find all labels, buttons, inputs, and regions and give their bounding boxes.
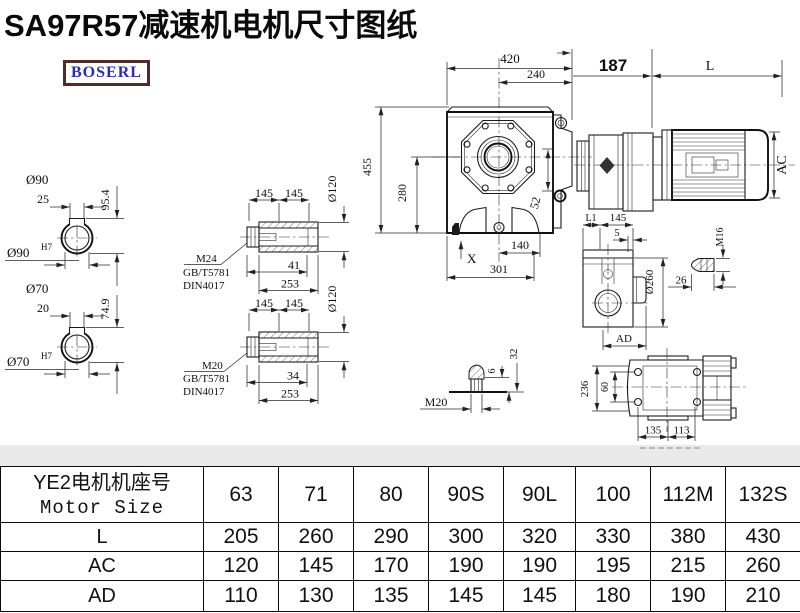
dim-253b-label: 253 [281,387,299,401]
drawing-sheet: Ø90 25 95.4 Ø90 H7 Ø70 20 74.9 Ø70 [0,0,800,613]
value-cell: 110 [204,581,279,612]
size-cell: 80 [354,467,429,523]
bolt-m20-label: M20 [202,360,223,372]
gearbox-bottom-view: 236 60 135 113 [579,348,748,448]
value-cell: 260 [279,523,354,552]
dim-301-label: 301 [490,262,508,276]
motor-side-view: 187 L AC [557,49,795,211]
plug-m16-detail: M16 26 [668,228,736,291]
dim-455-label: 455 [360,158,374,176]
header-cn: YE2电机机座号 [1,470,203,496]
dim-145a-label: 145 [255,186,273,200]
marker-x-label: X [467,251,477,266]
value-cell: 170 [354,552,429,581]
value-cell: 380 [651,523,726,552]
dim-keyway20-label: 20 [37,301,49,315]
table-row-AC: AC 120 145 170 190 190 195 215 260 [1,552,800,581]
value-cell: 215 [651,552,726,581]
dim-l-label: L [706,59,715,74]
header-motor-size: YE2电机机座号 Motor Size [1,467,204,523]
gearbox-front-view: 420 240 455 280 52 140 [360,49,592,281]
dim-52-label: 52 [527,195,544,210]
dim-145d-label: 145 [285,296,303,310]
brand-badge: BOSERL [63,60,150,86]
brand-badge-text: BOSERL [71,64,142,81]
dim-34-label: 34 [287,369,299,383]
shaft-section-70: Ø70 20 74.9 Ø70 H7 [5,281,124,394]
bore70-label: Ø70 [7,354,29,369]
value-cell: 145 [429,581,504,612]
value-cell: 190 [429,552,504,581]
dim-keyway25-label: 25 [37,192,49,206]
std-din4017-b-label: DIN4017 [183,386,225,398]
dim-32-label: 32 [508,349,520,360]
bushing-m24: 145 145 Ø120 M24 GB/T5781 DIN4017 41 253 [183,176,349,294]
dim-140-label: 140 [511,238,529,252]
dim-dia260-label: Ø260 [644,269,656,294]
value-cell: 430 [726,523,800,552]
value-cell: 300 [429,523,504,552]
dim-145e-label: 145 [610,212,627,224]
header-en: Motor Size [1,496,203,520]
table-row-L: L 205 260 290 300 320 330 380 430 [1,523,800,552]
size-cell: 63 [204,467,279,523]
dim-5-label: 5 [615,228,620,239]
plug-m16-label: M16 [715,228,726,247]
row-label: L [1,523,204,552]
std-gbt5781-a-label: GB/T5781 [183,267,230,279]
size-cell: 100 [576,467,651,523]
dim-26-label: 26 [676,275,688,287]
value-cell: 145 [504,581,576,612]
value-cell: 190 [504,552,576,581]
value-cell: 260 [726,552,800,581]
dim-dia70-label: Ø70 [26,281,48,296]
size-cell: 90S [429,467,504,523]
dim-145b-label: 145 [285,186,303,200]
dim-ad-label: AD [616,333,632,345]
dim-dia120b-label: Ø120 [325,286,339,313]
bushing-m20: 145 145 Ø120 M20 GB/T5781 DIN4017 34 253 [183,286,349,404]
dim-dia90-label: Ø90 [26,172,48,187]
row-label: AC [1,552,204,581]
dim-145c-label: 145 [255,296,273,310]
value-cell: 330 [576,523,651,552]
std-gbt5781-b-label: GB/T5781 [183,373,230,385]
table-header-row: YE2电机机座号 Motor Size 63 71 80 90S 90L 100… [1,467,800,523]
dim-420-label: 420 [500,51,520,66]
value-cell: 145 [279,552,354,581]
size-cell: 112M [651,467,726,523]
value-cell: 190 [651,581,726,612]
plug-m20-detail: M20 6 32 [420,349,524,414]
row-label: AD [1,581,204,612]
dim-60-label: 60 [600,382,611,392]
size-cell: 132S [726,467,800,523]
dim-253a-label: 253 [281,277,299,291]
vent-diamond-mark [600,157,615,174]
plug-m20-label: M20 [425,395,448,409]
dim-240-label: 240 [527,67,545,81]
bore70-fit-label: H7 [41,351,52,361]
value-cell: 135 [354,581,429,612]
value-cell: 290 [354,523,429,552]
dim-236-label: 236 [579,380,591,397]
gearbox-side-view: L1 145 5 Ø260 AD [583,212,668,350]
std-din4017-a-label: DIN4017 [183,280,225,292]
page-title: SA97R57减速机电机尺寸图纸 [4,0,417,45]
shaft-section-90: Ø90 25 95.4 Ø90 H7 [5,172,124,286]
size-cell: 71 [279,467,354,523]
value-cell: 205 [204,523,279,552]
table-row-AD: AD 110 130 135 145 145 180 190 210 [1,581,800,612]
value-cell: 180 [576,581,651,612]
bolt-m24-label: M24 [196,253,217,265]
dim-6-label: 6 [487,369,498,374]
bore90-label: Ø90 [7,245,29,260]
bore90-fit-label: H7 [41,242,52,252]
dim-dia120a-label: Ø120 [325,176,339,203]
dim-74-9-label: 74.9 [98,299,112,320]
dim-113-label: 113 [673,425,690,437]
dim-41-label: 41 [288,258,300,272]
size-cell: 90L [504,467,576,523]
value-cell: 130 [279,581,354,612]
dim-135-label: 135 [645,425,662,437]
value-cell: 195 [576,552,651,581]
value-cell: 320 [504,523,576,552]
dim-280-label: 280 [395,184,409,202]
value-cell: 120 [204,552,279,581]
value-cell: 210 [726,581,800,612]
dim-187-label: 187 [599,56,627,75]
motor-dimension-table: YE2电机机座号 Motor Size 63 71 80 90S 90L 100… [0,466,800,612]
oil-plug-mark [452,223,459,235]
dim-l1-label: L1 [585,213,596,224]
dim-95-4-label: 95.4 [98,190,112,211]
dim-ac-label: AC [775,155,790,174]
